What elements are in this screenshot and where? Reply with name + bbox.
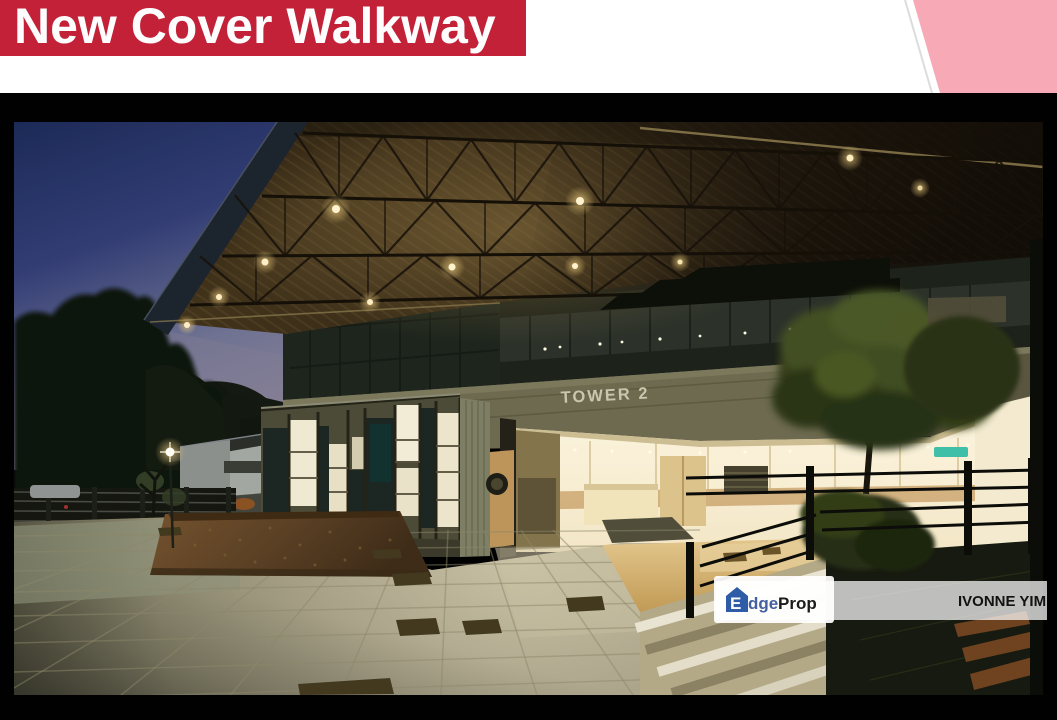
svg-text:Prop: Prop [778, 594, 817, 613]
svg-text:New Cover Walkway: New Cover Walkway [14, 0, 496, 54]
svg-text:E: E [730, 594, 741, 613]
svg-text:IVONNE YIM: IVONNE YIM [958, 593, 1046, 610]
svg-text:dge: dge [748, 594, 778, 613]
